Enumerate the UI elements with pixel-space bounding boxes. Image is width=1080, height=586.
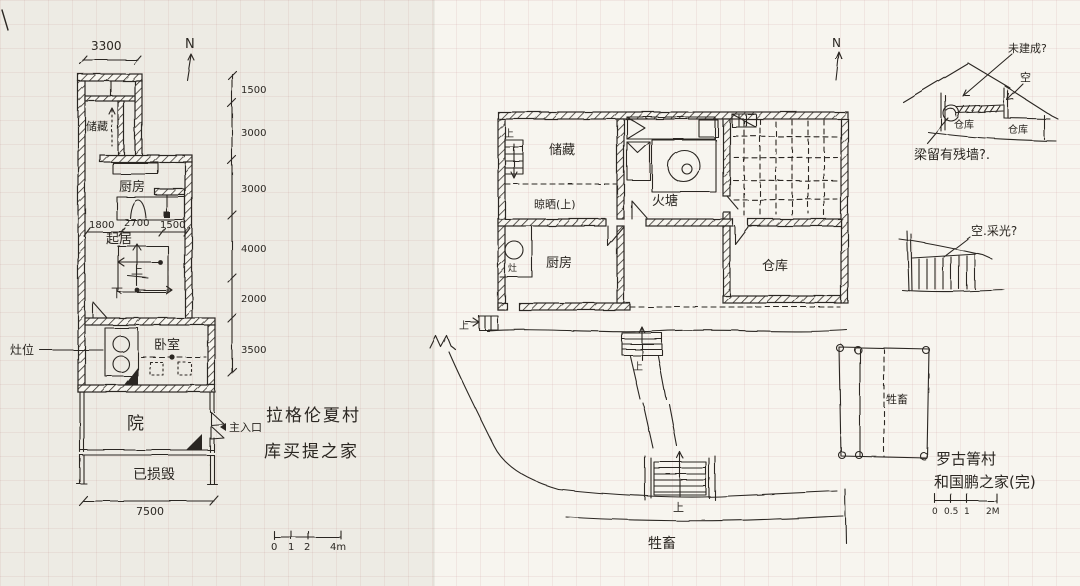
left-dim-inner-0: 1800	[89, 220, 114, 231]
left-chain-2: 3000	[241, 184, 266, 195]
right-scale-1: 0.5	[944, 507, 958, 517]
paper-corner-mark	[2, 10, 8, 30]
left-title-line1: 拉格伦夏村	[266, 406, 361, 426]
left-chain-0: 1500	[241, 85, 266, 96]
left-north-label: N	[185, 37, 195, 52]
right-plan-interior	[430, 52, 997, 543]
right-title-line1: 罗古箐村	[936, 450, 996, 468]
shed-note: 空.采光?	[971, 224, 1017, 238]
left-note-stove: 灶位	[10, 342, 34, 357]
left-scale-1: 1	[288, 542, 294, 553]
left-room-living: 起居	[106, 232, 132, 247]
left-chain-1: 3000	[241, 128, 266, 139]
left-scale-0: 0	[271, 542, 277, 553]
right-room-warehouse: 仓库	[762, 258, 788, 274]
right-north-label: N	[832, 36, 841, 50]
left-dim-inner-2: 1500	[160, 220, 185, 231]
left-room-courtyard: 院	[127, 414, 146, 434]
left-room-ruined: 已损毁	[133, 467, 175, 483]
sketch-page: 3300 N 储藏 厨房 1800 2700 1500 起居 上 下 卧室 灶位…	[0, 0, 1080, 586]
gable-roof-note: 未建成?	[1008, 41, 1047, 55]
left-stair-up: 上	[131, 263, 143, 277]
left-plan: 3300 N 储藏 厨房 1800 2700 1500 起居 上 下 卧室 灶位…	[10, 37, 361, 553]
left-chain-4: 2000	[241, 294, 266, 305]
right-stair-up-label: 上	[504, 128, 514, 140]
right-scale-3: 2M	[986, 507, 1000, 517]
left-room-storage: 储藏	[86, 119, 108, 133]
right-room-storage: 储藏	[549, 143, 575, 158]
left-scale-3: 4m	[330, 542, 346, 553]
left-title-line2: 库买提之家	[264, 442, 359, 462]
shed-section-sketch: 空.采光?	[899, 224, 1017, 292]
right-pen-label: 牲畜	[886, 392, 908, 406]
left-dim-bottom: 7500	[136, 505, 164, 518]
gable-left-room: 仓库	[954, 118, 974, 131]
left-scale-2: 2	[304, 542, 310, 553]
right-room-drying: 晾晒(上)	[534, 197, 576, 211]
left-dim-inner-1: 2700	[124, 218, 149, 229]
left-note-entrance: 主入口	[229, 421, 262, 434]
left-stair-down: 下	[111, 286, 123, 300]
right-lower-stair-up: 上	[673, 501, 684, 514]
gable-void-note: 空	[1020, 70, 1031, 84]
left-chain-3: 4000	[241, 244, 266, 255]
left-chain-5: 3500	[241, 345, 266, 356]
left-room-bedroom: 卧室	[154, 337, 180, 353]
right-room-kitchen: 厨房	[546, 255, 572, 271]
left-dim-top: 3300	[91, 39, 122, 53]
right-title-line2: 和国鹏之家(完)	[934, 473, 1036, 491]
gable-section-sketch: 未建成? 空 仓库 仓库 梁留有残墙?.	[903, 41, 1058, 163]
right-scale-0: 0	[932, 507, 938, 517]
right-plan-linework	[430, 52, 997, 543]
right-road-label: 牲畜	[648, 536, 676, 552]
gable-section-linework	[903, 54, 1058, 143]
right-entry-up-label: 上	[459, 320, 469, 332]
shed-section-linework	[899, 231, 1004, 292]
gable-beam-note: 梁留有残墙?.	[914, 148, 990, 163]
survey-sketch-canvas: 3300 N 储藏 厨房 1800 2700 1500 起居 上 下 卧室 灶位…	[0, 0, 1080, 586]
right-room-firepit: 火塘	[652, 193, 678, 209]
right-scale-2: 1	[964, 507, 970, 517]
left-room-kitchen: 厨房	[119, 179, 145, 195]
right-plan-walls	[498, 112, 848, 310]
right-stove-label: 灶	[508, 262, 517, 274]
gable-right-room: 仓库	[1008, 123, 1028, 136]
right-upper-stair-up: 上	[633, 361, 643, 373]
